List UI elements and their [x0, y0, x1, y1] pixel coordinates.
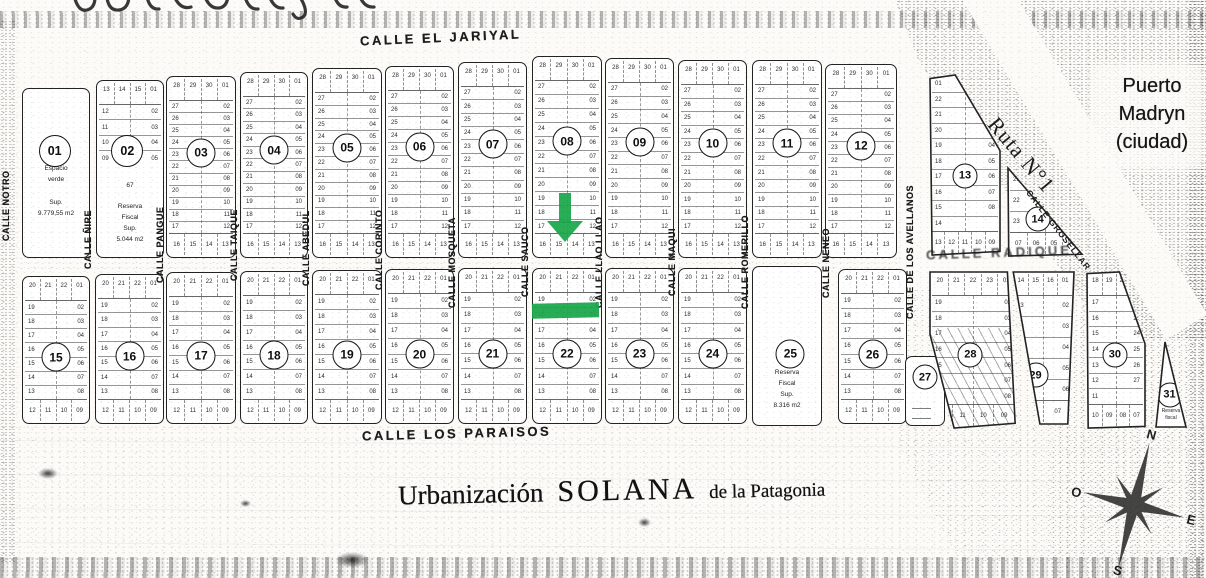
lot-row: 2021222301 [932, 274, 1014, 296]
lot-number: 06 [293, 150, 302, 156]
block-05: 2829300127022603250424052306220721082009… [312, 68, 382, 258]
lot-number: 01 [729, 63, 744, 84]
lot-number: 01 [656, 61, 671, 82]
lot-row: 1712 [681, 219, 744, 233]
lot-number: 06 [439, 359, 448, 365]
block-04-lots: 2829300127022603250424052306220721082009… [243, 75, 305, 255]
lot-row: 1803 [388, 308, 451, 323]
lot-number: 11 [114, 400, 130, 421]
lot-number: 22 [202, 275, 218, 296]
lot-number: 14 [493, 234, 509, 255]
lot-row: 1308 [315, 384, 379, 399]
note-line: Reserva [97, 201, 163, 212]
lot-number: 29 [551, 59, 567, 80]
lot-number: 22 [611, 155, 620, 161]
lot-row: 28293001 [388, 69, 451, 91]
lot-number: 06 [986, 174, 995, 180]
lot-number: 10 [640, 400, 656, 421]
lot-number: 23 [538, 140, 547, 146]
lot-number: 15 [538, 358, 547, 364]
lot-row: 2504 [315, 118, 379, 131]
lot-number: 29 [771, 63, 787, 84]
lot-row: 14 [932, 216, 998, 232]
lot-number: 22 [130, 277, 146, 298]
lot-row: 2504 [755, 111, 819, 125]
lot-number: 20 [538, 182, 547, 188]
lot-row: 2603 [169, 112, 233, 124]
lot-row: 2702 [755, 85, 819, 98]
lot-grid: 2702260325042405230622072108200919101811… [243, 97, 305, 233]
lot-number: 20 [611, 183, 620, 189]
lot-row: 20212201 [169, 275, 233, 297]
lot-row: 2603 [315, 105, 379, 118]
lot-number: 22 [684, 156, 693, 162]
block-01: 01EspacioverdeSup.9.779,55 m2 [22, 88, 90, 258]
lot-grid: 2702260325042405230622072108200919101811… [828, 89, 894, 233]
lot-number: 16 [464, 343, 473, 349]
lot-number: 03 [367, 109, 376, 115]
lot-number: 02 [882, 92, 891, 98]
lot-number: 05 [986, 159, 995, 165]
block-11: 2829300127022603250424052306220721082009… [752, 60, 822, 258]
lot-number: 21 [391, 172, 400, 178]
lot-number: 23 [246, 150, 255, 156]
lot-number: 29 [259, 75, 275, 96]
lot-number: 06 [149, 360, 158, 366]
lot-number: 18 [758, 210, 767, 216]
lot-row: 2603 [535, 94, 599, 108]
lot-number: 18 [684, 210, 693, 216]
block-06-number: 06 [405, 132, 434, 161]
lot-row: 1803 [461, 307, 524, 322]
lot-number: 02 [293, 100, 302, 106]
block-20-number: 20 [405, 340, 434, 369]
lot-row: 1902 [25, 301, 87, 314]
lot-number: 15 [185, 234, 201, 255]
lot-number: 20 [246, 187, 255, 193]
lot-number: 18 [246, 315, 255, 321]
lot-row: 28293001 [169, 79, 233, 101]
lot-number: 06 [892, 359, 901, 365]
lot-number: 05 [1060, 366, 1069, 372]
lot-number: 07 [732, 374, 741, 380]
block-31-area-note: Reservafiscal [1156, 408, 1186, 421]
lot-row: 2108 [681, 165, 744, 179]
lot-number: 28 [828, 67, 845, 88]
lot-row: 16151413 [388, 233, 451, 255]
lot-number: 19 [758, 197, 767, 203]
green-highlight-bar [532, 302, 599, 318]
block-10: 2829300127022603250424052306220721082009… [678, 60, 747, 258]
note-line: 9.779,55 m2 [23, 208, 89, 219]
lot-number: 06 [587, 140, 596, 146]
lot-number: 02 [659, 86, 668, 92]
street-label-calle-ñire: CALLE ÑIRE [83, 155, 97, 325]
lot-row: 2702 [535, 81, 599, 94]
block-13-number: 13 [953, 163, 978, 188]
lot-number: 21 [259, 274, 275, 295]
lot-number: 21 [331, 273, 347, 294]
lot-number: 17 [684, 224, 693, 230]
lot-row: 2108 [388, 168, 451, 181]
lot-number: 03 [732, 102, 741, 108]
lot-number: 17 [844, 328, 853, 334]
lot-row: 2009 [461, 180, 524, 193]
lot-number: 23 [172, 152, 181, 158]
lot-number: 14 [640, 234, 656, 255]
lot-number: 26 [246, 112, 255, 118]
lot-number: 16 [28, 347, 37, 353]
lot-number: 16 [318, 344, 327, 350]
lot-row: 1803 [315, 309, 379, 324]
lot-number: 01 [935, 81, 944, 87]
lot-row: 12111009 [841, 399, 904, 421]
lot-number: 10 [873, 400, 889, 421]
note-line: Fiscal [97, 212, 163, 223]
lot-number: 05 [367, 344, 376, 350]
lot-number: 03 [293, 112, 302, 118]
lot-number: 17 [758, 224, 767, 230]
lot-number: 14 [202, 234, 218, 255]
lot-row: 1308 [461, 384, 524, 399]
lot-number: 06 [882, 145, 891, 151]
lot-row: 1407 [535, 368, 599, 383]
lot-number: 06 [367, 359, 376, 365]
lot-number: 11 [697, 400, 713, 421]
lot-number: 03 [221, 116, 230, 122]
lot-row: 16151413 [755, 233, 819, 255]
green-arrow-annotation [547, 193, 583, 242]
lot-number: 21 [477, 271, 493, 292]
block-28-number: 28 [958, 342, 983, 367]
lot-number: 20 [172, 188, 181, 194]
lot-number: 14 [844, 374, 853, 380]
lot-row: 1910 [608, 192, 671, 206]
lot-number: 05 [221, 345, 230, 351]
lot-number: 11 [41, 400, 57, 421]
lot-number: 17 [391, 224, 400, 230]
lot-number: 22 [758, 156, 767, 162]
lot-row: 2504 [535, 108, 599, 122]
lot-number: 07 [807, 156, 816, 162]
street-label-calle-neneo: CALLE NENEO [821, 180, 835, 345]
lot-number: 04 [149, 332, 158, 338]
lot-number: 21 [624, 271, 640, 292]
lot-number: 16 [1092, 316, 1101, 322]
lot-number: 06 [221, 360, 230, 366]
lot-number: 17 [391, 328, 400, 334]
lot-row: 2009 [755, 179, 819, 193]
lot-number: 09 [889, 400, 904, 421]
lot-number: 05 [512, 130, 521, 136]
lot-number: 15 [611, 358, 620, 364]
lot-row: 1704 [681, 323, 744, 338]
lot-number: 15 [1092, 331, 1101, 337]
lot-number: 17 [611, 328, 620, 334]
lot-row: 1803 [243, 310, 305, 325]
lot-number: 26 [831, 105, 840, 111]
lot-number: 08 [293, 389, 302, 395]
note-line: Reserva [753, 367, 821, 378]
lot-row: 1308 [841, 384, 904, 399]
lot-number: 27 [246, 100, 255, 106]
compass-o: O [1070, 484, 1083, 501]
lot-row: 12111009 [388, 399, 451, 421]
block-12-number: 12 [847, 131, 876, 160]
lot-number: 25 [318, 122, 327, 128]
lot-row: 1308 [681, 384, 744, 399]
lot-number: 14 [28, 375, 37, 381]
block-01-note: Espacioverde [23, 163, 89, 185]
note-line: fiscal [1156, 415, 1186, 422]
lot-number: 20 [388, 272, 404, 293]
lot-number: 08 [892, 389, 901, 395]
lot-number: 17 [538, 328, 547, 334]
lot-number: 11 [1092, 394, 1101, 400]
note-line: Sup. [753, 389, 821, 400]
lot-number: 03 [882, 105, 891, 111]
lot-number: 22 [348, 273, 364, 294]
lot-number: 18 [611, 312, 620, 318]
block-02-note: 67 [97, 180, 163, 191]
lot-number: 20 [608, 271, 624, 292]
lot-row: 2702 [169, 101, 233, 112]
block-12-lots: 2829300127022603250424052306220721082009… [828, 67, 894, 255]
lot-number: 21 [404, 272, 420, 293]
lot-number: 22 [493, 271, 509, 292]
lot-number: 29 [697, 63, 713, 84]
lot-number: 15 [131, 83, 147, 104]
lot-row: 1704 [841, 323, 904, 338]
note-line: Espacio [23, 163, 89, 174]
lot-row: 1902 [461, 293, 524, 307]
lot-number: 14 [246, 374, 255, 380]
lot-number: 22 [831, 158, 840, 164]
lot-number: 20 [935, 128, 944, 134]
lot-number: 03 [659, 100, 668, 106]
lot-number: 04 [732, 115, 741, 121]
lot-number: 07 [221, 374, 230, 380]
lot-row: 2504 [681, 111, 744, 125]
lot-number: 21 [949, 274, 966, 295]
block-06-lots: 2829300127022603250424052306220721082009… [388, 69, 451, 255]
lot-row: 2603 [388, 103, 451, 116]
lot-row: 28293001 [608, 61, 671, 83]
lot-grid: 2702260325042405230622072108200919101811… [461, 87, 524, 233]
lot-number: 20 [243, 274, 259, 295]
note-line: verde [23, 174, 89, 185]
lot-number: 23 [318, 147, 327, 153]
lot-number: 15 [391, 359, 400, 365]
city-label-line2: Madryn [1096, 100, 1206, 128]
lot-number: 05 [221, 140, 230, 146]
lot-number: 16 [755, 234, 771, 255]
lot-row: 2504 [243, 121, 305, 133]
lot-row: 1308 [388, 384, 451, 399]
lot-number: 27 [538, 84, 547, 90]
lot-row: 2504 [828, 114, 894, 127]
lot-row: 1704 [535, 323, 599, 338]
lot-number: 08 [367, 389, 376, 395]
lot-number: 11 [102, 125, 111, 131]
lot-number: 22 [57, 279, 73, 300]
lot-number: 10 [202, 400, 218, 421]
lot-number: 22 [568, 271, 584, 292]
lot-number: 01 [509, 65, 524, 86]
lot-number: 15 [28, 361, 37, 367]
lot-number: 18 [464, 210, 473, 216]
lot-number: 15 [935, 205, 944, 211]
lot-number: 01 [878, 67, 894, 88]
lot-number: 22 [1013, 198, 1022, 204]
lot-number: 19 [391, 298, 400, 304]
lot-number: 26 [758, 102, 767, 108]
block-21: 2021220119021803170416051506140713081211… [458, 268, 527, 424]
lot-number: 25 [246, 125, 255, 131]
lot-row: 16151413 [315, 233, 379, 255]
lot-number: 09 [807, 183, 816, 189]
lot-number: 04 [367, 122, 376, 128]
lot-number: 07 [659, 155, 668, 161]
lot-number: 12 [25, 400, 41, 421]
block-24-number: 24 [698, 339, 727, 368]
lot-number: 21 [464, 170, 473, 176]
lot-number: 04 [807, 115, 816, 121]
lot-number: 18 [1089, 274, 1103, 295]
lot-number: 17 [464, 328, 473, 334]
lot-row: 13141501 [99, 83, 161, 105]
lot-number: 03 [512, 104, 521, 110]
lot-row: 1712 [608, 219, 671, 233]
lot-number: 23 [391, 146, 400, 152]
lot-number: 03 [439, 107, 448, 113]
lot-number: 04 [75, 333, 84, 339]
block-22-number: 22 [553, 339, 582, 368]
lot-row: 16151413 [681, 233, 744, 255]
street-label-calle-abedul: CALLE ABEDUL [301, 163, 315, 333]
lot-number: 08 [659, 169, 668, 175]
lot-number: 22 [640, 271, 656, 292]
lot-number: 18 [391, 211, 400, 217]
lot-number: 15 [101, 360, 110, 366]
lot-row: 2009 [243, 183, 305, 195]
lot-number: 02 [221, 104, 230, 110]
lot-number: 06 [659, 358, 668, 364]
lot-number: 12 [608, 400, 624, 421]
block-09: 2829300127022603250424052306220721082009… [605, 58, 674, 258]
lot-number: 14 [275, 234, 291, 255]
street-label-jariyal: CALLE EL JARIYAL [360, 26, 522, 48]
street-label-calle-maqui: CALLE MAQUI [667, 180, 681, 345]
street-label-calle-mosqueta: CALLE MOSQUETA [447, 175, 461, 350]
lot-row: 2702 [828, 89, 894, 101]
map-title-part3: de la Patagonia [709, 480, 825, 503]
lot-number: 11 [624, 400, 640, 421]
lot-number: 09 [1103, 405, 1117, 426]
lot-number: 16 [844, 343, 853, 349]
block-01-area-note: Sup.9.779,55 m2 [23, 197, 89, 219]
lot-number: 14 [611, 374, 620, 380]
lot-number: 15 [845, 234, 862, 255]
lot-row: 1704 [243, 325, 305, 340]
lot-number: 25 [758, 115, 767, 121]
lot-number: 02 [512, 90, 521, 96]
lot-number: 25 [538, 112, 547, 118]
lot-row: 1407 [98, 370, 161, 384]
note-line: 5.044 m2 [97, 234, 163, 245]
lot-number: 19 [1103, 274, 1117, 295]
lot-row: 28293001 [828, 67, 894, 89]
lot-number: 07 [1044, 401, 1073, 422]
lot-number: 02 [1060, 303, 1069, 309]
lot-number: 02 [732, 88, 741, 94]
lot-number: 30 [862, 67, 879, 88]
lot-number: 07 [892, 374, 901, 380]
lot-number: 21 [611, 169, 620, 175]
lot-number: 21 [318, 173, 327, 179]
lot-number: 09 [102, 156, 111, 162]
lot-number: 16 [1044, 274, 1059, 295]
lot-grid: 2702260325042405230622072108200919101811… [315, 93, 379, 233]
lot-row: 11 [1089, 388, 1143, 404]
lot-number: 14 [713, 234, 729, 255]
lot-row: 2009 [169, 185, 233, 197]
block-25-number: 25 [776, 339, 805, 368]
lot-number: 07 [512, 374, 521, 380]
lot-number: 19 [611, 196, 620, 202]
block-07-number: 07 [478, 130, 507, 159]
lot-number: 14 [348, 234, 364, 255]
lot-row: 10090807 [1089, 404, 1143, 426]
lot-number: 28 [681, 63, 697, 84]
lot-number: 18 [246, 212, 255, 218]
lot-row: 2702 [388, 91, 451, 103]
lot-number: 18 [538, 210, 547, 216]
lot-number: 02 [587, 84, 596, 90]
lot-row: 2702 [681, 85, 744, 98]
block-20: 2021220119021803170416051506140713081211… [385, 269, 454, 424]
lot-number: 13 [1092, 363, 1101, 369]
lot-number: 13 [878, 234, 894, 255]
block-04: 2829300127022603250424052306220721082009… [240, 72, 308, 258]
lot-number: 23 [611, 141, 620, 147]
lot-number: 12 [1092, 378, 1101, 384]
block-07-lots: 2829300127022603250424052306220721082009… [461, 65, 524, 255]
lot-number: 19 [538, 297, 547, 303]
lot-number: 19 [318, 198, 327, 204]
lot-row: 1910 [755, 192, 819, 206]
lot-number: 28 [461, 65, 477, 86]
lot-row: 1811 [315, 207, 379, 220]
lot-number: 16 [101, 346, 110, 352]
lot-number: 14 [862, 234, 879, 255]
lot-number: 08 [587, 389, 596, 395]
lot-number: 09 [436, 400, 451, 421]
lot-number: 08 [587, 168, 596, 174]
lot-number: 20 [841, 272, 857, 293]
lot-number: 07 [587, 374, 596, 380]
lot-number: 20 [932, 274, 949, 295]
lot-number: 03 [1060, 324, 1069, 330]
lot-number: 28 [608, 61, 624, 82]
lot-number: 05 [149, 346, 158, 352]
lot-number: 07 [732, 156, 741, 162]
note-line: Fiscal [753, 378, 821, 389]
lot-number: 24 [831, 132, 840, 138]
lot-row: 2603 [828, 101, 894, 114]
lot-number: 07 [149, 375, 158, 381]
lot-number: 10 [493, 400, 509, 421]
